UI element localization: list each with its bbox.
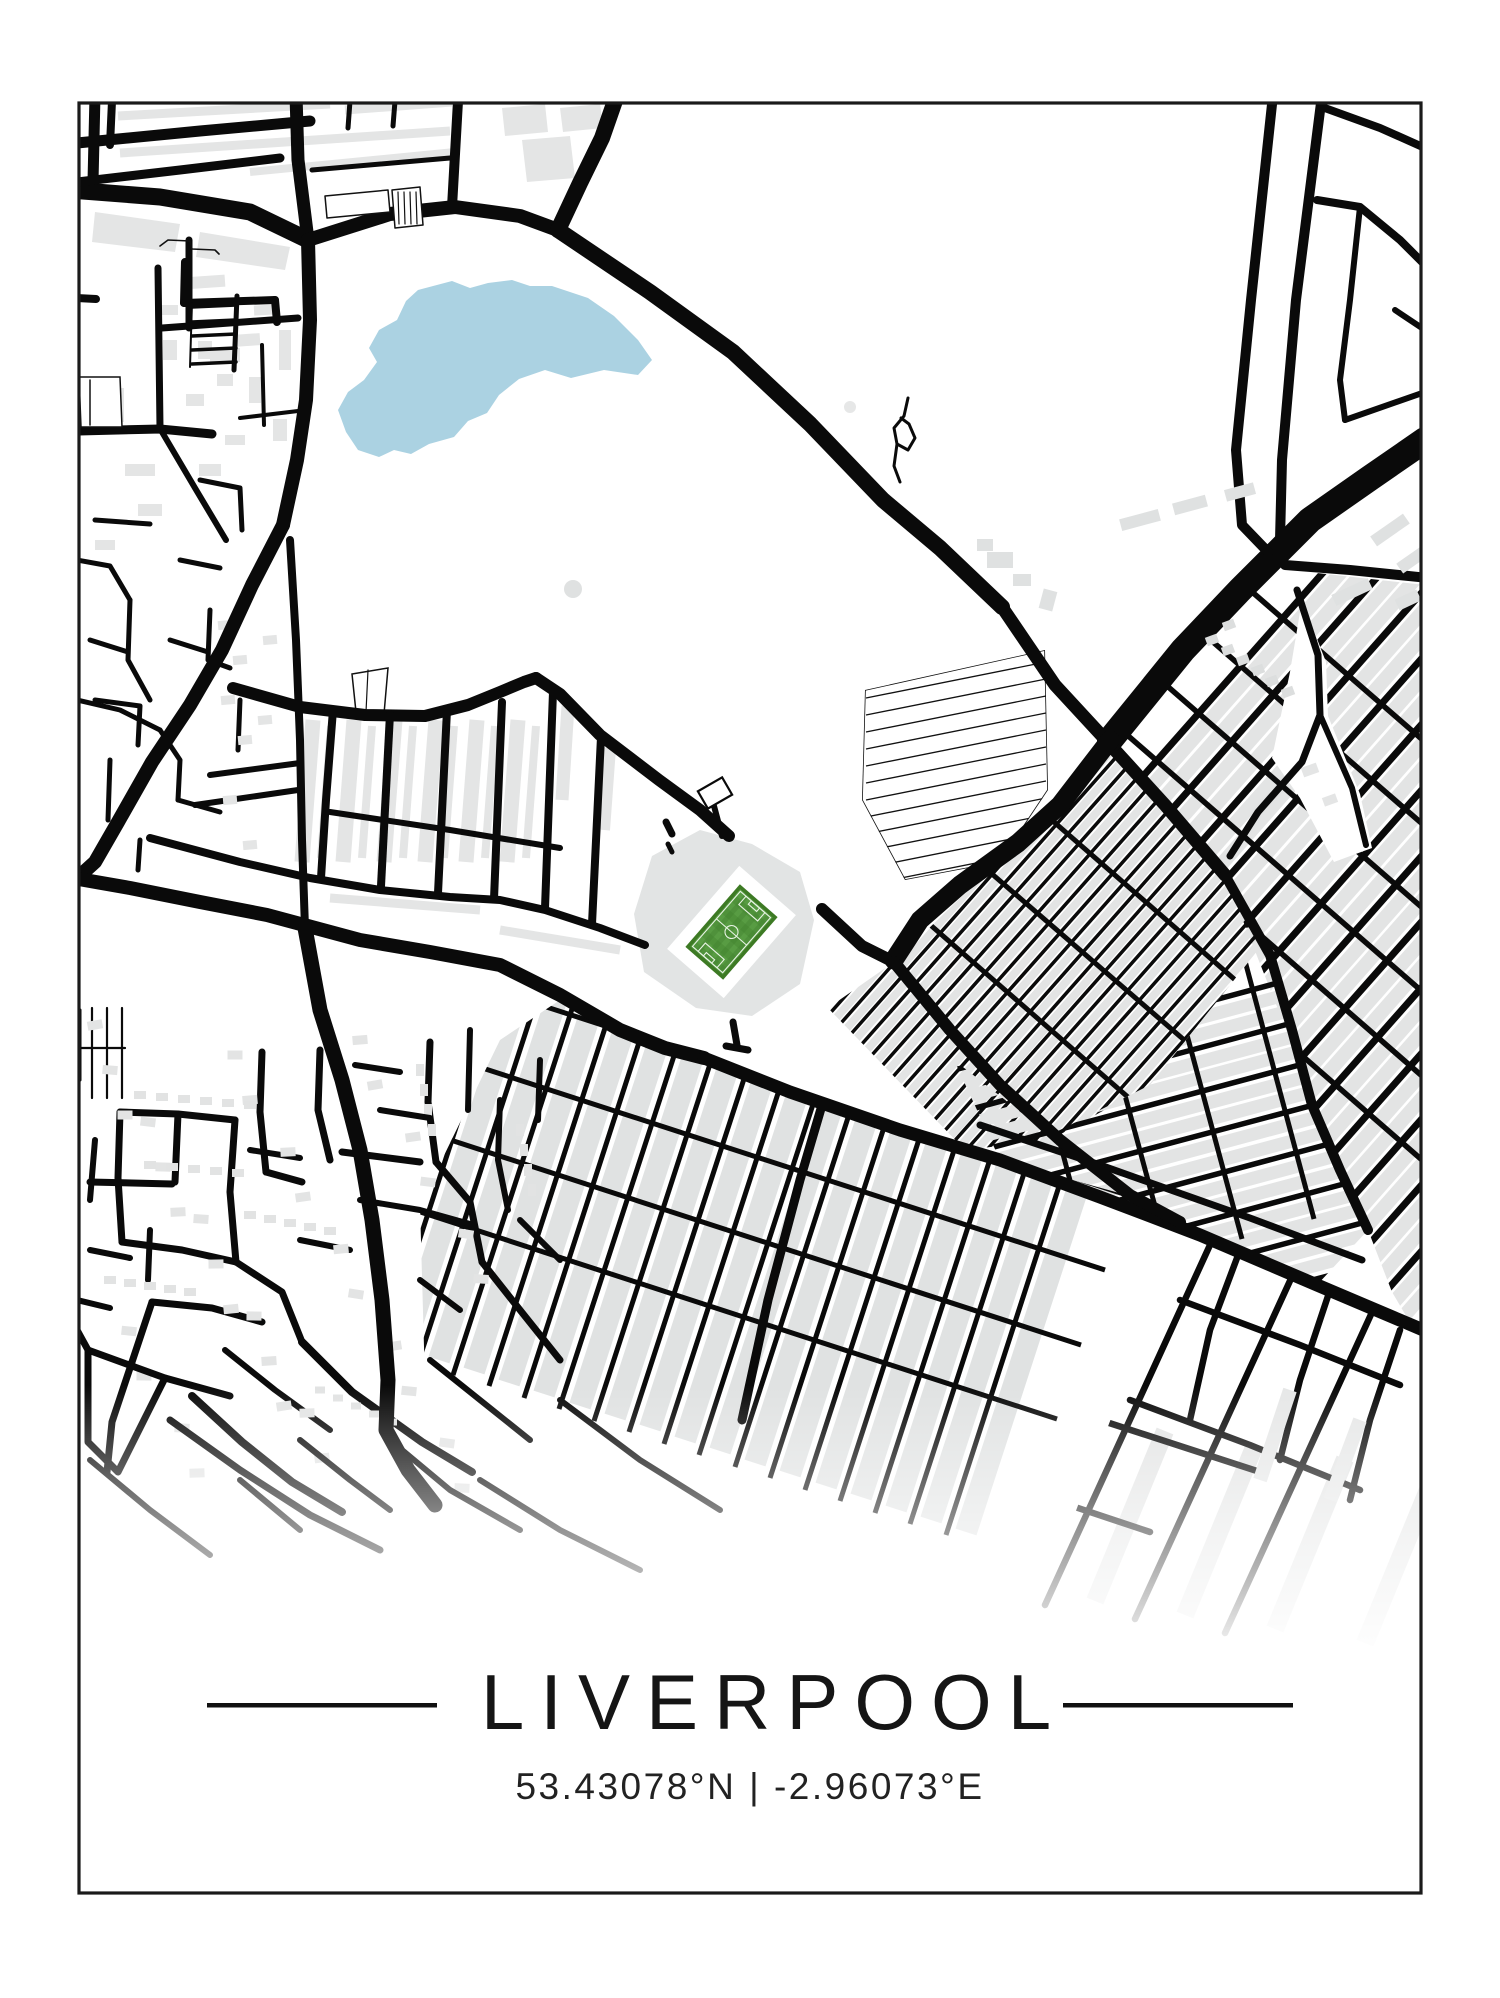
svg-text:LIVERPOOL: LIVERPOOL xyxy=(481,1658,1067,1746)
svg-text:53.43078°N | -2.96073°E: 53.43078°N | -2.96073°E xyxy=(515,1766,984,1807)
